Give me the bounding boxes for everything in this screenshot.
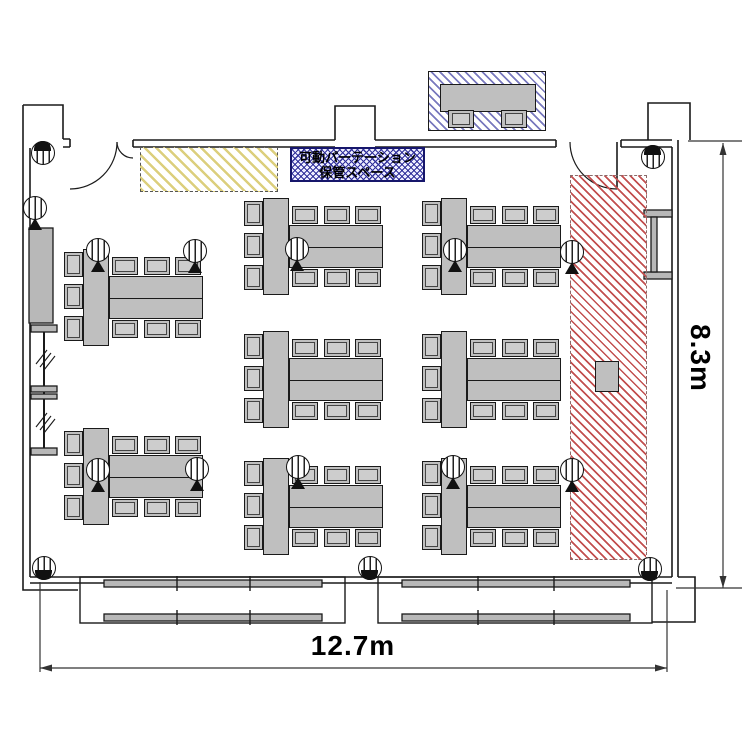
- long-tables: [289, 358, 383, 401]
- chair: [470, 339, 496, 357]
- chair: [292, 402, 318, 420]
- chair: [502, 339, 528, 357]
- position-marker-triangle: [291, 477, 305, 489]
- position-marker-triangle: [565, 262, 579, 274]
- position-marker-triangle: [290, 259, 304, 271]
- partition-storage-label: 可動パーテーション 保管スペース: [290, 147, 425, 182]
- striped-circle-fixture: [286, 455, 310, 479]
- chair: [112, 320, 138, 338]
- chair: [64, 431, 83, 456]
- striped-circle-fixture: [560, 458, 584, 482]
- chair: [175, 320, 201, 338]
- equipment-box: [595, 361, 619, 392]
- position-marker-triangle: [446, 477, 460, 489]
- chair: [144, 499, 170, 517]
- chair: [292, 339, 318, 357]
- chair: [355, 466, 381, 484]
- chair: [292, 269, 318, 287]
- table-group: [243, 331, 383, 428]
- chair: [175, 436, 201, 454]
- chair: [533, 529, 559, 547]
- position-marker-triangle: [91, 480, 105, 492]
- long-tables: [467, 225, 561, 268]
- side-table: [263, 458, 289, 555]
- chair: [112, 499, 138, 517]
- red-reserved-area: [570, 175, 647, 560]
- chair: [64, 284, 83, 309]
- striped-circle-fixture: [443, 238, 467, 262]
- chair: [355, 339, 381, 357]
- chair: [533, 466, 559, 484]
- chair: [422, 265, 441, 290]
- height-dimension-label: 8.3m: [686, 303, 716, 413]
- width-dimension-label: 12.7m: [253, 630, 453, 662]
- chair: [422, 398, 441, 423]
- chair: [175, 499, 201, 517]
- chair: [64, 316, 83, 341]
- chair: [244, 366, 263, 391]
- chair: [244, 461, 263, 486]
- chair: [422, 525, 441, 550]
- chair: [292, 206, 318, 224]
- chair: [64, 252, 83, 277]
- table-group: [243, 458, 383, 555]
- chair: [355, 402, 381, 420]
- table-group: [63, 428, 203, 525]
- chair: [244, 493, 263, 518]
- chair: [422, 201, 441, 226]
- striped-circle-fixture: [23, 196, 47, 220]
- chair: [422, 461, 441, 486]
- chair: [533, 206, 559, 224]
- striped-circle-fixture: [638, 557, 662, 581]
- chair: [470, 466, 496, 484]
- chair: [324, 402, 350, 420]
- table-group: [421, 198, 561, 295]
- floor-plan: 可動パーテーション 保管スペース 12.7m 8.3m: [0, 0, 750, 750]
- chair: [422, 233, 441, 258]
- chair: [112, 257, 138, 275]
- table-group: [243, 198, 383, 295]
- chair: [324, 466, 350, 484]
- chair: [533, 402, 559, 420]
- storage-label-line1: 可動パーテーション: [299, 150, 416, 165]
- chair: [502, 402, 528, 420]
- striped-circle-fixture: [86, 238, 110, 262]
- striped-circle-fixture: [441, 455, 465, 479]
- striped-circle-fixture: [641, 145, 665, 169]
- chair: [470, 206, 496, 224]
- reception-chair: [501, 110, 527, 128]
- position-marker-triangle: [565, 480, 579, 492]
- chair: [244, 334, 263, 359]
- side-table: [441, 331, 467, 428]
- chair: [355, 529, 381, 547]
- striped-circle-fixture: [358, 556, 382, 580]
- table-group: [63, 249, 203, 346]
- striped-circle-fixture: [32, 556, 56, 580]
- reception-chair: [448, 110, 474, 128]
- chair: [502, 529, 528, 547]
- position-marker-triangle: [190, 479, 204, 491]
- long-tables: [109, 276, 203, 319]
- chair: [292, 529, 318, 547]
- position-marker-triangle: [448, 260, 462, 272]
- chair: [355, 269, 381, 287]
- position-marker-triangle: [188, 261, 202, 273]
- striped-circle-fixture: [560, 240, 584, 264]
- position-marker-triangle: [28, 218, 42, 230]
- chair: [324, 206, 350, 224]
- chair: [355, 206, 381, 224]
- chair: [324, 269, 350, 287]
- chair: [422, 334, 441, 359]
- chair: [422, 493, 441, 518]
- chair: [470, 529, 496, 547]
- chair: [533, 269, 559, 287]
- chair: [533, 339, 559, 357]
- table-group: [421, 331, 561, 428]
- chair: [144, 436, 170, 454]
- chair: [502, 269, 528, 287]
- striped-circle-fixture: [31, 141, 55, 165]
- chair: [470, 269, 496, 287]
- long-tables: [467, 485, 561, 528]
- position-marker-triangle: [91, 260, 105, 272]
- chair: [502, 206, 528, 224]
- striped-circle-fixture: [183, 239, 207, 263]
- chair: [502, 466, 528, 484]
- chair: [244, 233, 263, 258]
- chair: [470, 402, 496, 420]
- chair: [144, 257, 170, 275]
- storage-label-line2: 保管スペース: [319, 165, 395, 180]
- chair: [112, 436, 138, 454]
- chair: [244, 201, 263, 226]
- chair: [244, 398, 263, 423]
- chair: [324, 529, 350, 547]
- striped-circle-fixture: [185, 457, 209, 481]
- chair: [64, 495, 83, 520]
- side-table: [263, 331, 289, 428]
- chair: [324, 339, 350, 357]
- striped-circle-fixture: [86, 458, 110, 482]
- chair: [244, 525, 263, 550]
- reception-table: [440, 84, 536, 112]
- chair: [422, 366, 441, 391]
- long-tables: [289, 485, 383, 528]
- chair: [64, 463, 83, 488]
- long-tables: [467, 358, 561, 401]
- reception-area: [428, 71, 546, 131]
- yellow-highlight-area: [140, 147, 278, 192]
- striped-circle-fixture: [285, 237, 309, 261]
- chair: [244, 265, 263, 290]
- chair: [144, 320, 170, 338]
